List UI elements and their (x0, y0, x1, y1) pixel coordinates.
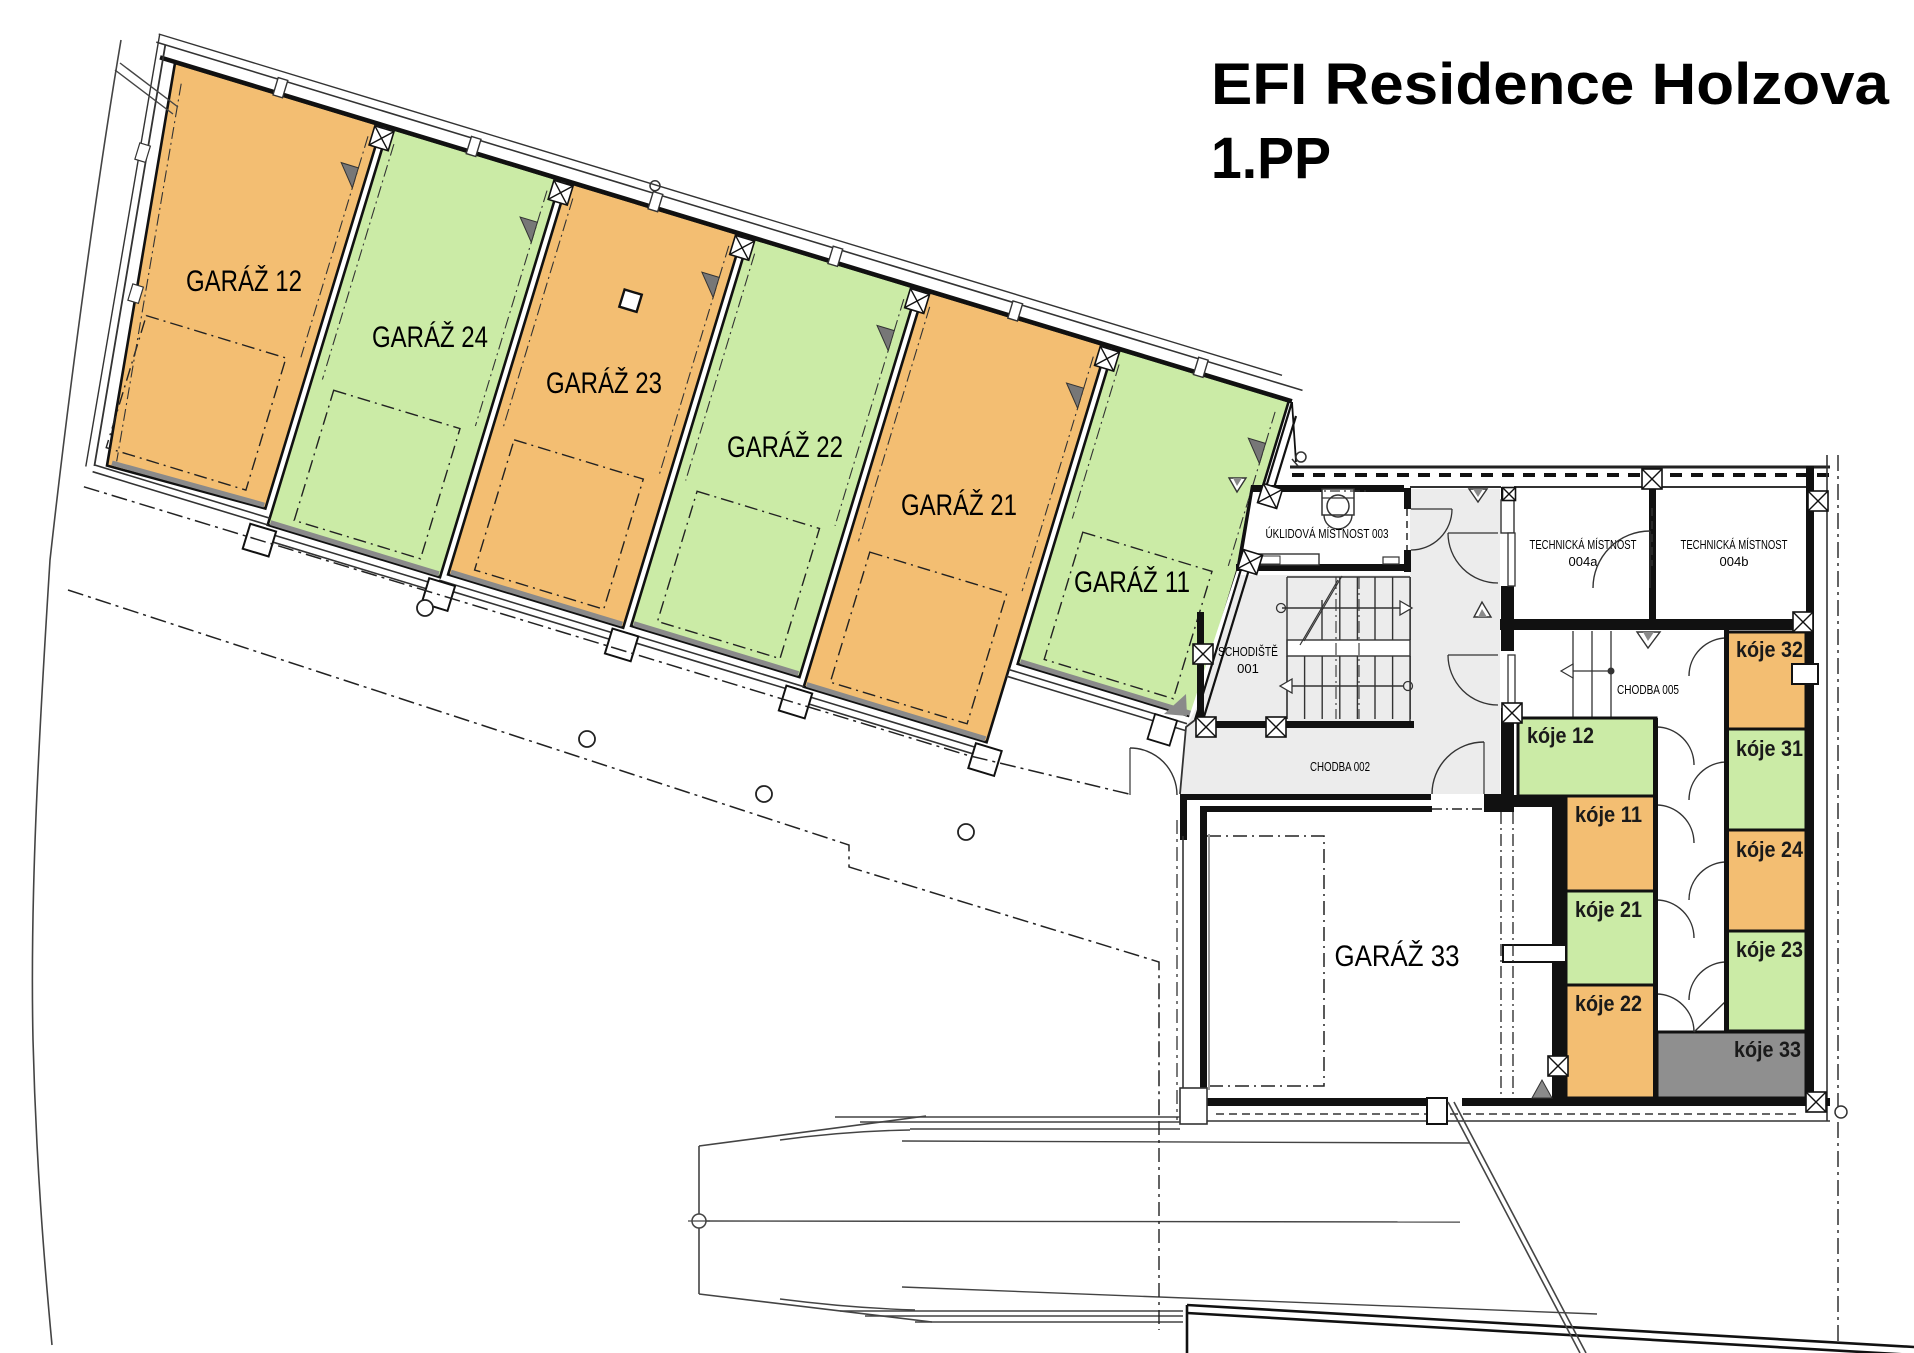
svg-text:001: 001 (1237, 661, 1259, 676)
svg-text:kóje 33: kóje 33 (1734, 1037, 1801, 1062)
svg-text:GARÁŽ 33: GARÁŽ 33 (1335, 940, 1460, 973)
svg-text:kóje 32: kóje 32 (1736, 637, 1803, 662)
svg-text:GARÁŽ 12: GARÁŽ 12 (186, 265, 302, 298)
svg-text:kóje 12: kóje 12 (1527, 723, 1594, 748)
svg-text:kóje 23: kóje 23 (1736, 937, 1803, 962)
svg-text:GARÁŽ 11: GARÁŽ 11 (1074, 566, 1190, 599)
svg-text:GARÁŽ 24: GARÁŽ 24 (372, 321, 488, 354)
svg-text:004b: 004b (1720, 554, 1749, 569)
svg-text:kóje 21: kóje 21 (1575, 897, 1642, 922)
svg-text:kóje 22: kóje 22 (1575, 991, 1642, 1016)
svg-text:ÚKLIDOVÁ MÍSTNOST 003: ÚKLIDOVÁ MÍSTNOST 003 (1266, 526, 1389, 541)
svg-text:kóje 31: kóje 31 (1736, 736, 1803, 761)
svg-text:EFI Residence Holzova: EFI Residence Holzova (1211, 52, 1890, 117)
svg-text:GARÁŽ 23: GARÁŽ 23 (546, 367, 662, 400)
svg-text:CHODBA 002: CHODBA 002 (1310, 759, 1370, 774)
svg-text:kóje 24: kóje 24 (1736, 837, 1804, 862)
svg-text:004a: 004a (1569, 554, 1599, 569)
svg-text:TECHNICKÁ MÍSTNOST: TECHNICKÁ MÍSTNOST (1681, 537, 1788, 552)
svg-text:CHODBA 005: CHODBA 005 (1617, 682, 1679, 697)
svg-text:SCHODIŠTĚ: SCHODIŠTĚ (1218, 644, 1278, 659)
svg-text:1.PP: 1.PP (1211, 126, 1331, 191)
svg-text:kóje 11: kóje 11 (1575, 802, 1642, 827)
svg-text:GARÁŽ 21: GARÁŽ 21 (901, 489, 1017, 522)
svg-text:GARÁŽ 22: GARÁŽ 22 (727, 431, 843, 464)
